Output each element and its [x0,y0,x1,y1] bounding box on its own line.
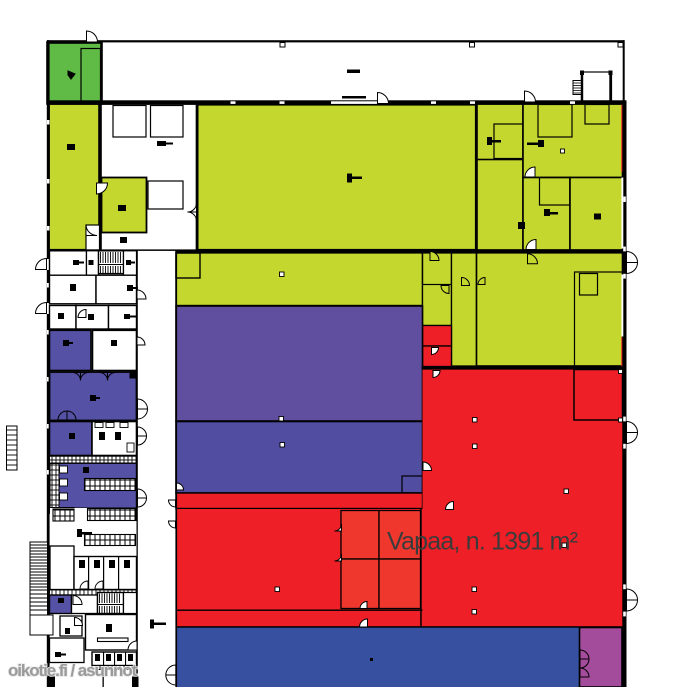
svg-text:Vapaa, n. 1391 m²: Vapaa, n. 1391 m² [387,528,578,556]
svg-text:oikotie.fi / asunnot: oikotie.fi / asunnot [8,661,138,680]
